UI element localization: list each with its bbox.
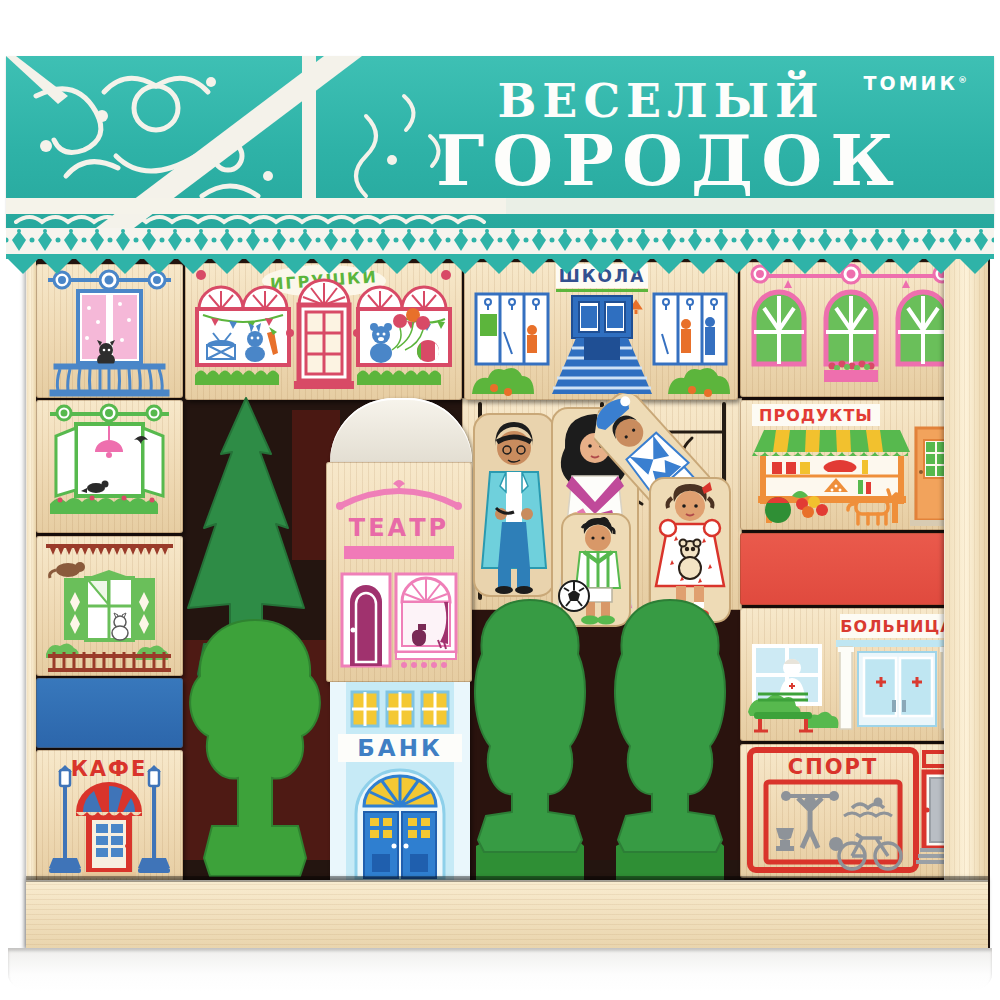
- school-block: ШКОЛА: [464, 262, 738, 400]
- street-lamp-right: [138, 765, 170, 873]
- bank-art: БАНК: [330, 682, 470, 882]
- bank-windows: [352, 692, 448, 726]
- bench: [754, 694, 813, 731]
- box-left-rail: [26, 258, 36, 950]
- pupil-orange: [681, 319, 691, 353]
- toy-store-art: ИГРУШКИ: [185, 263, 462, 400]
- cafe-block: КАФЕ: [36, 750, 183, 886]
- athlete-silhouettes: [776, 791, 901, 869]
- plain-red-block: [740, 533, 962, 605]
- school-art: ШКОЛА: [464, 262, 738, 400]
- hospital-block: БОЛЬНИЦА: [740, 608, 962, 741]
- bank-label: БАНК: [357, 735, 442, 761]
- theater-art: ТЕАТР: [326, 462, 472, 682]
- title-line-2: ГОРОДОК: [436, 125, 886, 196]
- sport-label: СПОРТ: [788, 755, 879, 779]
- products-label: ПРОДУКТЫ: [759, 406, 873, 425]
- cafe-art: КАФЕ: [36, 750, 183, 886]
- sport-art: СПОРТ: [740, 744, 962, 878]
- lace-pattern: [6, 228, 994, 254]
- brand-name: ТОМИК: [864, 72, 958, 94]
- street-lamp-left: [49, 765, 81, 873]
- product-photo: ИГРУШКИ: [0, 0, 1000, 1000]
- bank-entrance: [356, 770, 444, 878]
- striped-ball: [417, 340, 439, 362]
- pennant-pattern: [6, 254, 994, 276]
- cafe-awning: [76, 782, 142, 816]
- arched-windows: [754, 292, 948, 364]
- toy-store-block: ИГРУШКИ: [185, 263, 462, 400]
- box-bottom-rail-shadowline: [26, 876, 988, 882]
- sport-block: СПОРТ: [740, 744, 962, 878]
- fence: [48, 652, 171, 672]
- round-tree-left: [180, 614, 330, 894]
- weightlifter: [781, 791, 839, 848]
- banner-pennant-band: [6, 254, 994, 276]
- window-cat-art: [36, 536, 183, 676]
- flower-box: [824, 361, 878, 383]
- tree-crown: [475, 600, 585, 852]
- box-bottom-lip: [8, 948, 992, 992]
- swimmer: [844, 798, 892, 817]
- round-tree-center-2: [598, 596, 742, 884]
- theater-door: [342, 574, 390, 666]
- round-tree-center-1: [458, 596, 602, 884]
- products-block: ПРОДУКТЫ: [740, 400, 962, 530]
- trophy: [776, 828, 794, 851]
- balcony-block: [36, 264, 183, 398]
- window-birds-art: [36, 400, 183, 533]
- theater-label: ТЕАТР: [349, 514, 449, 542]
- box-banner: ВЕСЕЛЫЙ ГОРОДОК ТОМИК®: [6, 56, 994, 228]
- awning: [752, 430, 910, 456]
- pink-house-art: [740, 262, 962, 397]
- cafe-label: КАФЕ: [71, 757, 148, 781]
- bank-block: БАНК: [330, 682, 470, 882]
- banner-lace-band: [6, 228, 994, 254]
- products-art: ПРОДУКТЫ: [740, 400, 962, 530]
- window-birds-block: [36, 400, 183, 533]
- lambrequin: [46, 544, 173, 555]
- hospital-doors: [858, 652, 936, 726]
- theater-block: ТЕАТР: [326, 462, 472, 682]
- pupil-blue: [705, 317, 715, 355]
- round-tree-left-shape: [190, 620, 320, 876]
- tree-crown: [615, 600, 725, 852]
- toy-store-door: [286, 280, 361, 389]
- banner-title: ВЕСЕЛЫЙ ГОРОДОК: [436, 78, 886, 196]
- brand-logo: ТОМИК®: [864, 72, 970, 94]
- balcony-art: [36, 264, 183, 398]
- pupil-left: [527, 325, 537, 353]
- hospital-art: БОЛЬНИЦА: [740, 608, 962, 741]
- cat-on-ledge: [50, 562, 85, 578]
- window-cat-block: [36, 536, 183, 676]
- box-bottom-rail: [26, 880, 988, 950]
- theater-window: [396, 574, 456, 668]
- title-line-1: ВЕСЕЛЫЙ: [436, 78, 886, 125]
- cafe-door: [82, 816, 136, 878]
- registered-mark: ®: [958, 75, 970, 85]
- plain-blue-block: [36, 678, 183, 748]
- flower-sill: [50, 496, 158, 515]
- teddy: [679, 540, 701, 580]
- pink-house-block: [740, 262, 962, 397]
- box-right-rail: [944, 258, 988, 950]
- hospital-label: БОЛЬНИЦА: [840, 617, 953, 636]
